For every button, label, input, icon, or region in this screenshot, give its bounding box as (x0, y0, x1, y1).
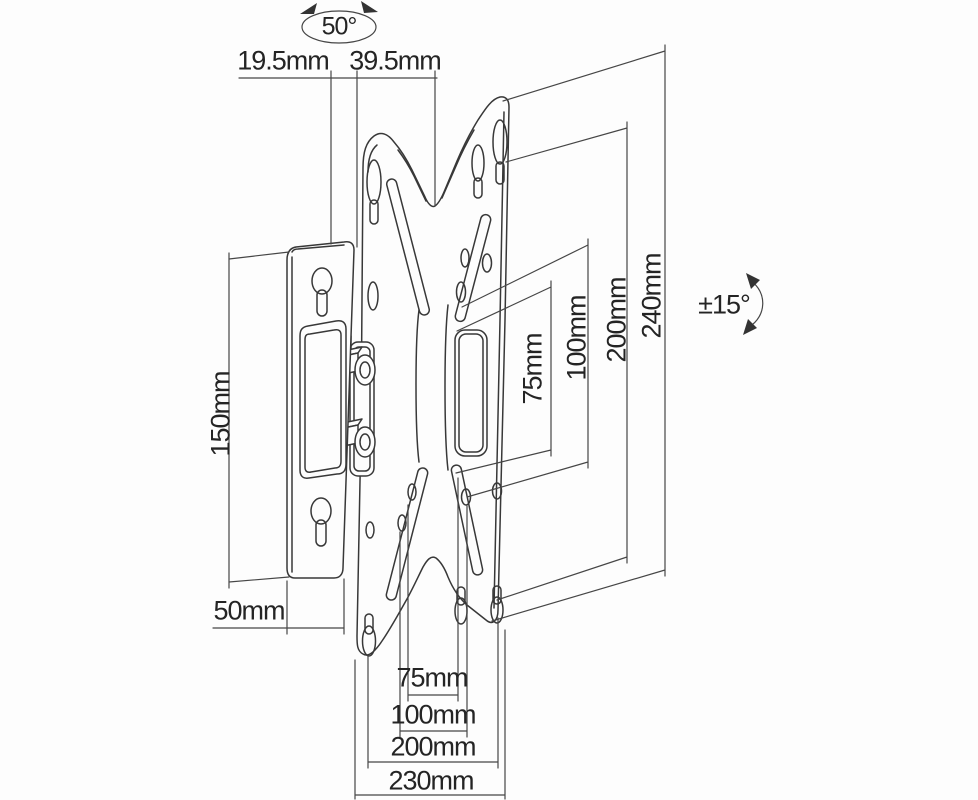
tv-mount-technical-drawing: 50° 19.5mm 39.5mm 150mm 50mm 75mm 100mm … (0, 0, 978, 800)
dim-label-tilt-angle: ±15° (698, 292, 750, 319)
dim-label-plate-width-200: 200mm (390, 734, 475, 761)
dim-label-vesa-height-75: 75mm (520, 333, 547, 404)
dim-label-plate-height-240: 240mm (639, 253, 666, 338)
dim-label-wall-plate-height: 150mm (208, 371, 235, 456)
dim-label-vesa-width-100: 100mm (390, 702, 475, 729)
dim-label-plate-width-230: 230mm (388, 768, 473, 795)
vesa-plate-drawing (357, 97, 509, 656)
line-art (0, 0, 978, 800)
dim-label-bracket-depth: 39.5mm (349, 48, 441, 75)
swivel-arrow-left-icon (300, 3, 317, 14)
dim-label-wall-offset: 19.5mm (237, 48, 329, 75)
wall-plate-drawing (287, 242, 354, 578)
dim-label-plate-height-200: 200mm (604, 277, 631, 362)
hinge-boss (300, 321, 346, 478)
dim-label-vesa-width-75: 75mm (396, 665, 467, 692)
dim-label-swivel-angle: 50° (322, 15, 357, 40)
swivel-arrow-right-icon (361, 1, 378, 13)
dim-label-wall-plate-width: 50mm (213, 598, 284, 625)
dim-label-vesa-height-100: 100mm (564, 295, 591, 380)
